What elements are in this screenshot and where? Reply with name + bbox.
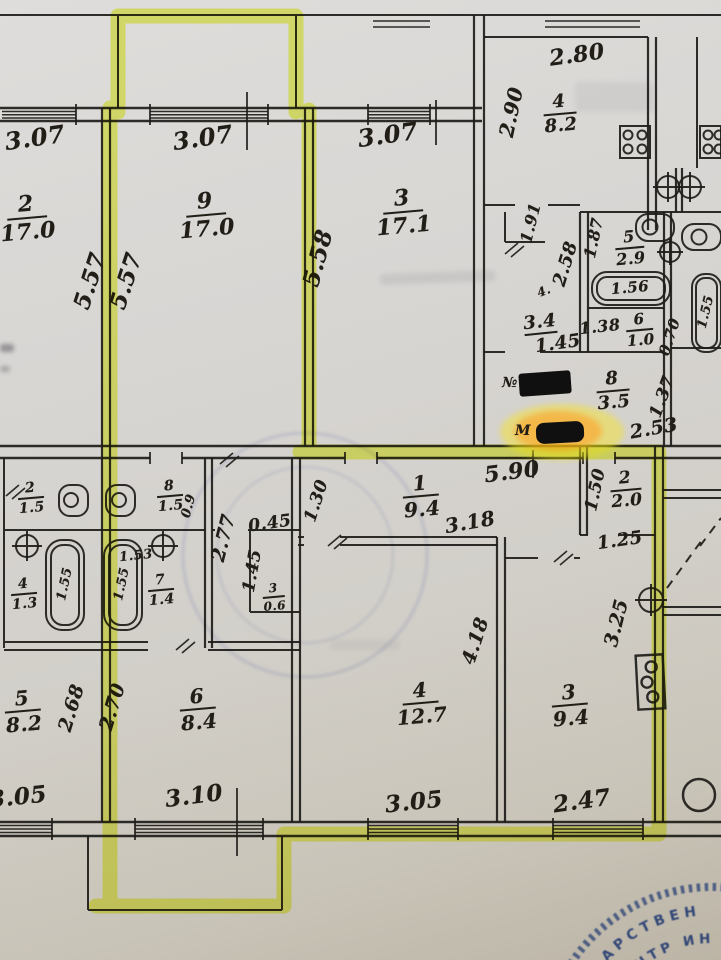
stamp-beaded-ring (544, 887, 721, 960)
stamp-center-faint (183, 433, 427, 677)
floor-plan-scan: 217.0917.0317.148.252.961.083.519.422.02… (0, 0, 721, 960)
stamp-bottom-right: ГОСУДАРСТВЕН ЫЙ ЦЕНТР ИН ТАРИЗА ГОРОДО (544, 887, 721, 960)
stamps-layer: ГОСУДАРСТВЕН ЫЙ ЦЕНТР ИН ТАРИЗА ГОРОДО (0, 0, 721, 960)
